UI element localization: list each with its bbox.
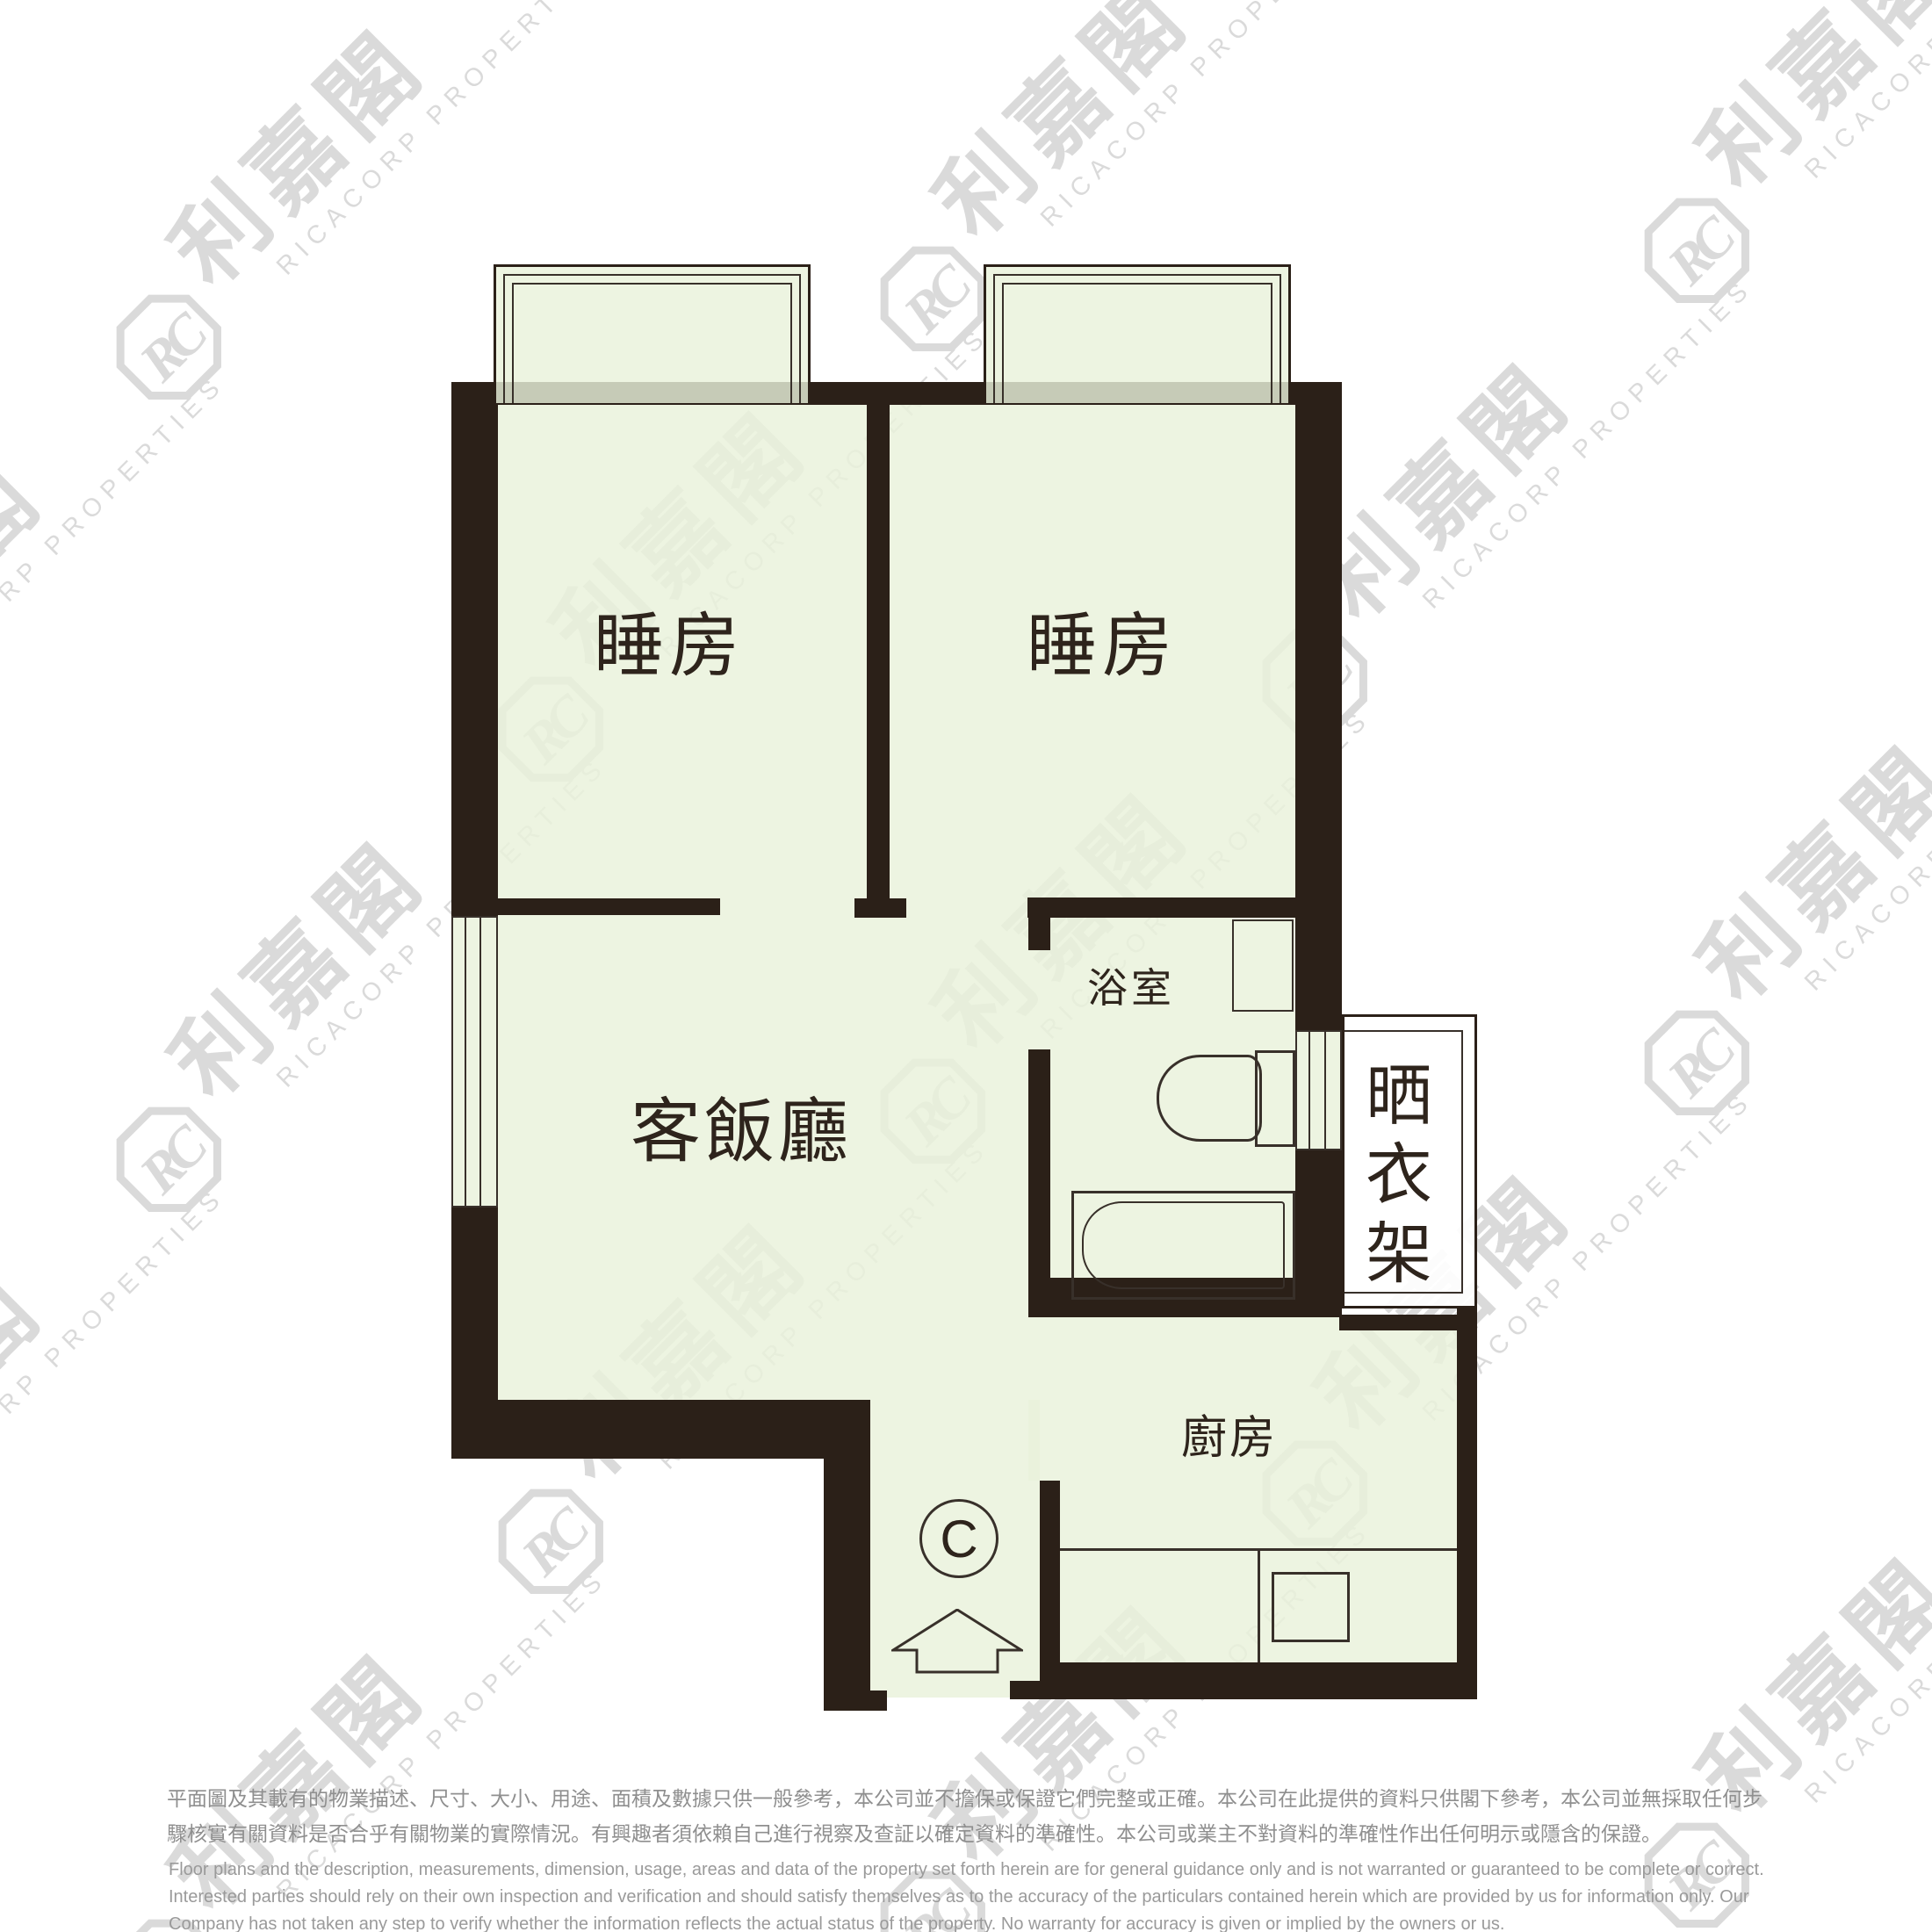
wall-bathroom-left [1028, 1049, 1050, 1282]
bathtub-basin [1082, 1201, 1285, 1289]
entrance-marker-c: C [919, 1499, 998, 1578]
window-frame [479, 918, 481, 1206]
wall-kitchen-bottom [1040, 1662, 1477, 1699]
wall-entrance-left [824, 1400, 870, 1711]
window-frame [465, 918, 466, 1206]
bedroom-right-label: 睡房 [970, 608, 1234, 687]
kitchen-counter-divider [1258, 1551, 1260, 1662]
kitchen-doorway-floor [1028, 1317, 1060, 1481]
bathroom-cabinet [1232, 919, 1294, 1012]
disclaimer-english: Floor plans and the description, measure… [169, 1856, 1764, 1932]
disclaimer-chinese: 平面圖及其載有的物業描述、尺寸、大小、用途、面積及數據只供一般參考，本公司並不擔… [167, 1781, 1763, 1851]
disclaimer-zh-line1: 平面圖及其載有的物業描述、尺寸、大小、用途、面積及數據只供一般參考，本公司並不擔… [167, 1781, 1763, 1816]
disclaimer-en-line3: Company has not taken any step to verify… [169, 1911, 1764, 1932]
entrance-arrow-icon [891, 1609, 1023, 1674]
wall-kitchen-bottom-step [1010, 1681, 1045, 1699]
disclaimer-zh-line2: 驟核實有關資料是否合乎有關物業的實際情況。有興趣者須依賴自己進行視察及查証以確定… [167, 1816, 1763, 1851]
window-frame [1324, 1032, 1326, 1149]
drying-rack-label: 晒衣架 [1354, 1047, 1430, 1310]
wall-corridor-right [1040, 1481, 1060, 1681]
bedroom-left-window [494, 264, 811, 405]
window-frame [1308, 1032, 1310, 1149]
kitchen-sink-icon [1272, 1572, 1350, 1642]
window-frame [512, 283, 792, 403]
toilet-bowl-icon [1157, 1055, 1262, 1142]
wall-left-upper [451, 384, 498, 916]
kitchen-label: 廚房 [1142, 1414, 1317, 1465]
wall-bedroom-bottom [451, 898, 720, 915]
wall-living-bottom [451, 1400, 825, 1459]
living-room-window [451, 916, 498, 1207]
wall-bathroom-top [1027, 898, 1295, 918]
wall-kitchen-right [1457, 1306, 1477, 1662]
wall-bedroom-divider [867, 405, 890, 898]
wall-entrance-foot [870, 1690, 887, 1711]
floor-plan: 晒衣架 睡房 睡房 客飯廳 浴室 廚房 C [0, 0, 1932, 1932]
wall-right-bedroom [1295, 382, 1342, 918]
living-dining-label: 客飯廳 [566, 1093, 917, 1172]
floor-plan-page: RC利嘉閣RICACORP PROPERTIESRC利嘉閣RICACORP PR… [0, 0, 1932, 1932]
bedroom-right-window [984, 264, 1291, 405]
bathroom-label: 浴室 [1043, 966, 1219, 1012]
wall-bathroom-left-stub [1028, 918, 1050, 950]
wall-divider-foot [854, 898, 906, 918]
wall-right-bath-upper [1295, 918, 1342, 1030]
window-frame [1002, 283, 1272, 403]
bedroom-left-label: 睡房 [537, 608, 801, 687]
disclaimer-en-line2: Interested parties should rely on their … [169, 1884, 1764, 1911]
disclaimer-en-line1: Floor plans and the description, measure… [169, 1856, 1764, 1884]
bathroom-window [1295, 1030, 1342, 1150]
